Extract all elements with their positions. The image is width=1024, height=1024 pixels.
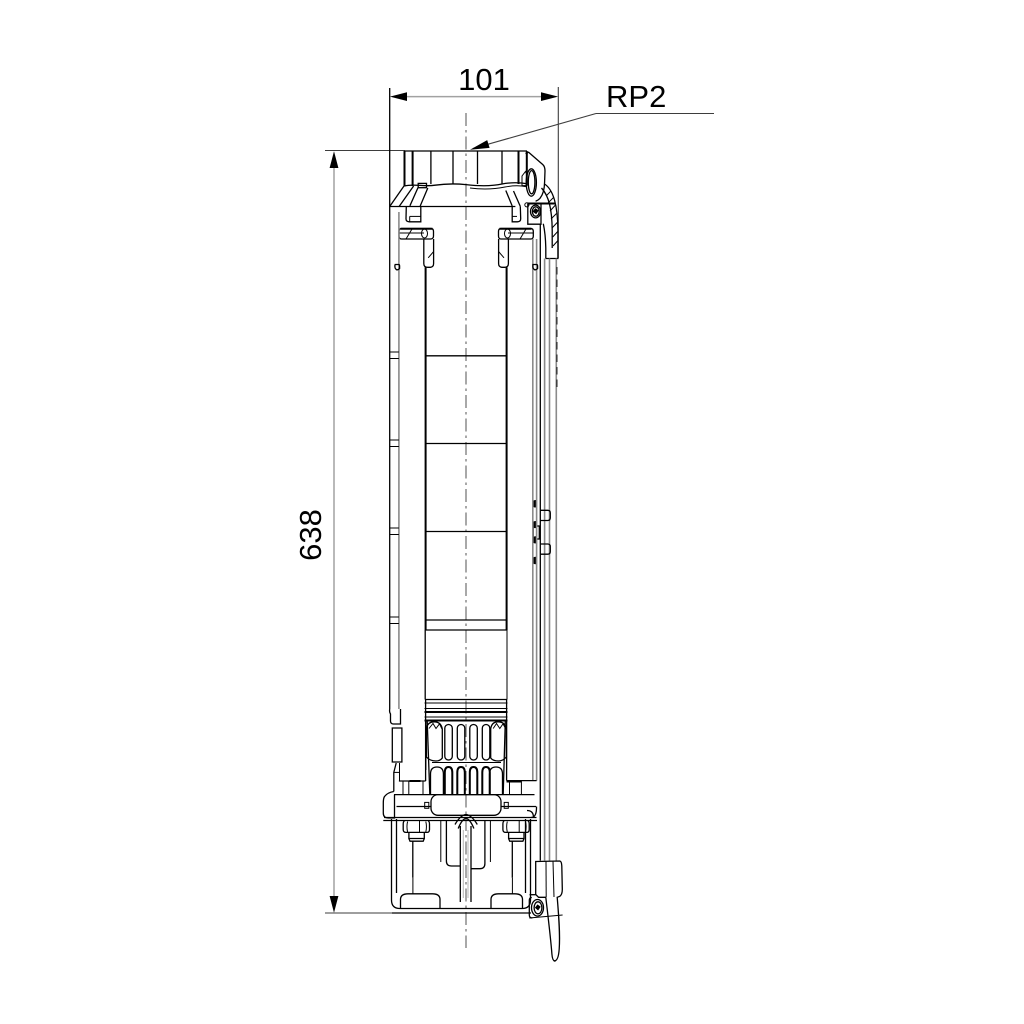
svg-text:101: 101 [458,62,510,97]
svg-text:638: 638 [293,509,328,561]
svg-text:RP2: RP2 [606,79,666,114]
